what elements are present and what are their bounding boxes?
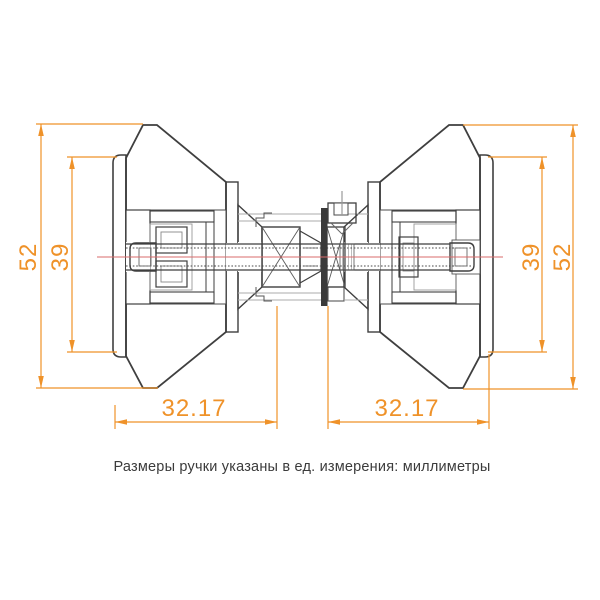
technical-drawing-canvas: 52 39 39 52 32.17 32 [0,0,600,600]
left-boss-inner-bottom [161,266,182,282]
units-caption: Размеры ручки указаны в ед. измерения: м… [114,459,491,475]
dimension-32-17-right: 32.17 [328,306,489,429]
set-screw-slot [334,203,348,215]
dimension-39-left: 39 [47,157,117,352]
dim-label-32-17-left: 32.17 [161,395,226,422]
dim-label-39-left: 39 [47,243,74,272]
dimension-32-17-left: 32.17 [115,306,277,429]
right-rose-plate [480,155,493,357]
dim-label-39-right: 39 [518,243,545,272]
left-boss-inner-top [161,232,182,248]
dim-label-32-17-right: 32.17 [374,395,439,422]
dim-label-52-left: 52 [15,243,42,272]
right-step-block [328,287,344,301]
left-rose-plate [113,155,126,357]
door-knob-cross-section: 52 39 39 52 32.17 32 [0,0,600,600]
dim-label-52-right: 52 [549,243,576,272]
dimension-39-right: 39 [488,157,547,352]
